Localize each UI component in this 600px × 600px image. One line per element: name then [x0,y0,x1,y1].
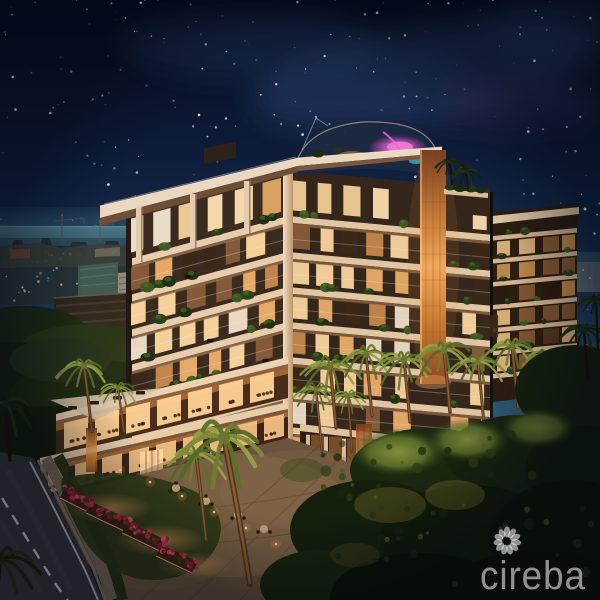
architectural-night-rendering: cireba [0,0,600,600]
cireba-wordmark: cireba [480,554,586,598]
vignette [0,0,600,600]
